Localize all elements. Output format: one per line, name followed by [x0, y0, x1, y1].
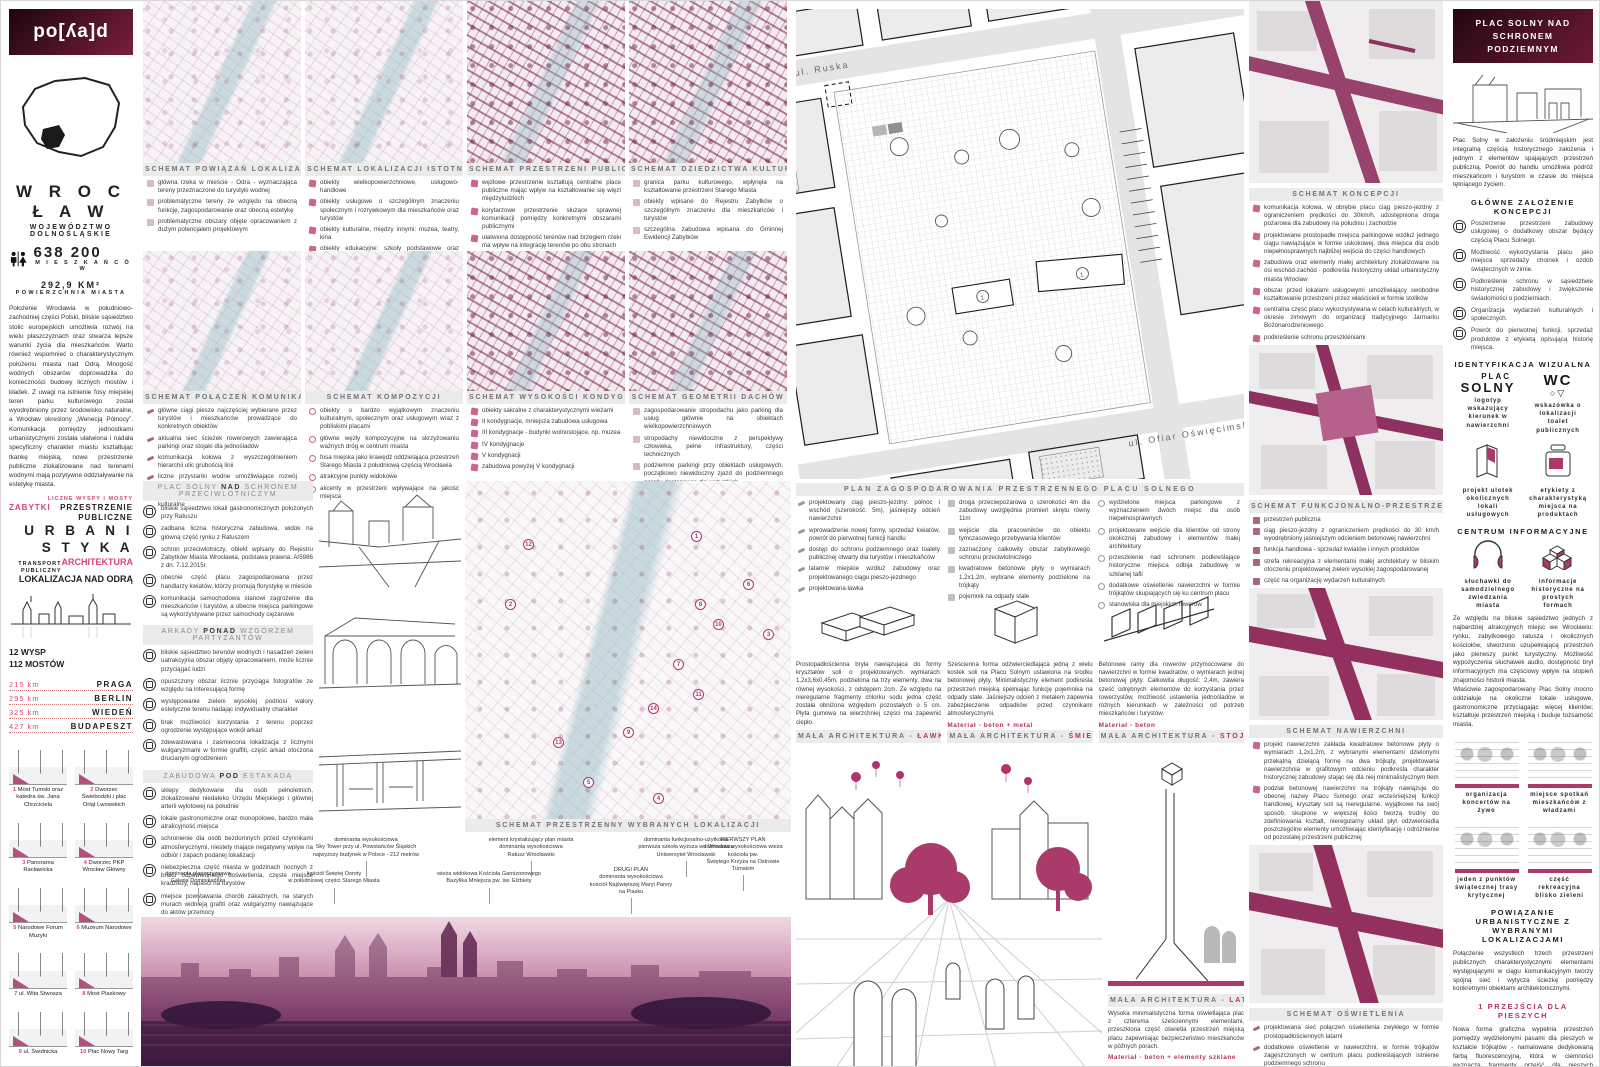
landmark-sketch	[9, 1003, 67, 1047]
street-sketch	[319, 481, 461, 589]
legend-icon	[309, 435, 317, 443]
site-item-text: bliskie sąsiedztwo terenów wodnych i nas…	[161, 649, 313, 674]
legend-text: obszar przed lokalami usługowymi umożliw…	[1264, 287, 1439, 303]
bullet-icon	[143, 698, 156, 711]
legend-text: problematyczne obszary objęte opracowani…	[158, 218, 297, 234]
site-item-text: sklepy dedykowane dla osób pełnoletnich,…	[161, 787, 313, 812]
legend-icon	[1253, 578, 1260, 585]
site-section-items: bliskie sąsiedztwo lokali gastronomiczny…	[143, 505, 313, 619]
info-cubes-icon	[1540, 540, 1576, 570]
photo-caption: jeden z punktów świątecznej trasy krytyc…	[1455, 876, 1519, 900]
furniture-desc: Prostopadłościenna bryła nawiązująca do …	[796, 661, 941, 727]
map-marker: 3	[763, 629, 774, 640]
photo-caption: miejsce spotkań mieszkańców z władzami	[1528, 791, 1592, 815]
legend-icon	[1253, 287, 1261, 295]
legend-icon	[633, 408, 640, 415]
meeting-illustration	[1528, 736, 1592, 788]
landmark-item: 6 Muzeum Narodowe	[75, 879, 133, 939]
landmark-name: Dworzec PKP Wrocław Główny	[82, 860, 125, 873]
bullet-icon	[143, 739, 156, 752]
legend-text: centralna część placu wykorzystywana w c…	[1264, 306, 1439, 331]
legend-icon	[633, 199, 640, 206]
distance-row: 427 km BUDAPESZT	[9, 719, 133, 733]
idwiz-caption: logotyp wskazujący kierunek w nawierzchn…	[1459, 397, 1517, 429]
distance-row: 295 km BERLIN	[9, 691, 133, 705]
landmark-item: 1 Most Tumski oraz katedra św. Jana Chrz…	[9, 741, 67, 809]
legend-icon	[1253, 559, 1260, 566]
landmark-name: Narodowe Forum Muzyki	[18, 925, 63, 938]
landmark-number: 5	[13, 925, 16, 931]
legend-text: III kondygnacje - budynki wolnostojące, …	[482, 429, 620, 437]
legend-text: droga przeciwpożarowa o szerokości 4m dl…	[959, 499, 1090, 524]
legend-text: część na organizację wydarzeń kulturalny…	[1264, 577, 1385, 585]
concept-icon	[1453, 327, 1466, 340]
lighting-title: SCHEMAT OŚWIETLENIA	[1249, 1008, 1443, 1021]
centrum-caption: słuchawki do samodzielnego zwiedzania mi…	[1459, 578, 1517, 610]
concept-text: Powrót do pierwotnej funkcji, sprzedaż p…	[1471, 327, 1593, 352]
landmark-name: Dworzec Świebodzki i plac Orląt Lwowskic…	[82, 787, 126, 807]
legend-text: zabudowa oraz elementy małej architektur…	[1264, 259, 1439, 284]
area-label: POWIERZCHNIA MIASTA	[9, 290, 133, 296]
legend-icon	[1253, 517, 1260, 524]
legend-icon	[1253, 205, 1261, 213]
lantern-panel: MAŁA ARCHITEKTURA - LATARNIA Wysoka mini…	[1108, 749, 1244, 1067]
master-plan: 1 1 ul. Ruska ul. Ofiar Oświęcimskich	[796, 9, 1244, 479]
legend-text: aktualna sieć ścieżek rowerowych zawiera…	[158, 435, 297, 451]
landmark-name: Panorama Racławicka	[23, 860, 53, 873]
legend-text: IV kondygnacje	[482, 441, 524, 449]
plan-caption: PLAN ZAGOSPODAROWANIA PRZESTRZENNEGO PLA…	[796, 483, 1244, 496]
site-section-title: ARKADY PONAD WZGÓRZEM PARTYZANTÓW	[143, 625, 313, 645]
trash-bin-sketch	[965, 589, 1065, 653]
landmark-caption: 1 Most Tumski oraz katedra św. Jana Chrz…	[9, 787, 67, 809]
panorama-annotations: dominanta wysokościowa Sky Tower przy ul…	[141, 837, 791, 907]
bikes-illustration	[1455, 821, 1519, 873]
furniture-caption: MAŁA ARCHITEKTURA - STOJAK	[1099, 730, 1244, 743]
spatial-map: 1234567891011121314	[465, 481, 791, 819]
landmark-sketch	[9, 814, 67, 858]
bullet-icon	[143, 525, 156, 538]
headphones-icon	[1470, 540, 1506, 570]
legend-icon	[471, 419, 479, 427]
landmark-caption: 10 Plac Nowy Targ	[75, 1049, 133, 1056]
map-marker: 11	[693, 689, 704, 700]
schematic-cell: SCHEMAT KOMPOZYCJI obiekty o bardzo wyją…	[305, 251, 463, 504]
legend-text: główne ciągi piesze najczęściej wybieran…	[158, 407, 297, 432]
panorama-label: DRUGI PLAN dominanta wysokościowa kośció…	[571, 867, 691, 914]
landmark-grid: 1 Most Tumski oraz katedra św. Jana Chrz…	[9, 741, 133, 1067]
landmark-number: 4	[84, 860, 87, 866]
cloud-word: TRANSPORT PUBLICZNY	[9, 561, 62, 575]
legend-icon	[471, 180, 479, 188]
map-marker: 8	[695, 599, 706, 610]
map-marker: 9	[623, 727, 634, 738]
legend-text: zagospodarowanie stropodachu jako parkin…	[644, 407, 783, 432]
legend-icon	[1253, 334, 1261, 342]
schematic-map	[629, 251, 787, 391]
bullet-icon	[143, 719, 156, 732]
bullet-icon	[143, 574, 156, 587]
furniture-caption: MAŁA ARCHITEKTURA - LATARNIA	[1108, 994, 1244, 1007]
map-marker: 1	[691, 531, 702, 542]
concept-title: SCHEMAT KONCEPCJI	[1249, 188, 1443, 201]
schematic-title: SCHEMAT DZIEDZICTWA KULTUROWEGO	[629, 163, 787, 176]
landmark-name: Muzeum Narodowe	[81, 925, 131, 931]
landmark-number: 1	[13, 787, 16, 793]
concept-text: Podkreślenie schronu w sąsiedztwie histo…	[1471, 278, 1593, 303]
map-marker: 10	[713, 619, 724, 630]
site-item-text: brak możliwości korzystania z terenu pop…	[161, 719, 313, 735]
legend-text: V kondygnacji	[482, 452, 521, 460]
concept-text: Organizacja wydarzeń kulturalnych i społ…	[1471, 307, 1593, 324]
material-label: Materiał - beton + elementy szklane	[1108, 1054, 1244, 1061]
legend-text: projektowany ciąg pieszo-jezdny: północ …	[809, 499, 940, 524]
landmark-name: ul. Świdnicka	[24, 1049, 58, 1055]
functional-title: SCHEMAT FUNKCJONALNO-PRZESTRZENNY	[1249, 500, 1443, 513]
landmark-sketch	[9, 741, 67, 785]
legend-text: projektowane prostopadłe miejsca parking…	[1264, 232, 1439, 257]
landmark-item: 8 Most Piaskowy	[75, 945, 133, 998]
legend-icon	[798, 548, 806, 554]
legend-text: ciąg pieszo-jezdny z ograniczeniem prędk…	[1264, 527, 1439, 543]
panorama-label: PIERWSZY PLAN dominanta wysokościowa wie…	[697, 837, 789, 891]
concept-legend: komunikacja kołowa, w obrębie placu ciąg…	[1249, 201, 1443, 342]
legend-icon	[471, 207, 479, 215]
landmark-sketch	[9, 945, 67, 989]
furniture-captions: MAŁA ARCHITEKTURA - ŁAWKA MAŁA ARCHITEKT…	[796, 730, 1244, 743]
landmark-caption: 8 Most Piaskowy	[75, 991, 133, 998]
legend-text: kwadratowe betonowe płyty o wymiarach 1,…	[959, 565, 1090, 590]
concept-icon	[1453, 307, 1466, 320]
legend-text: zabudowa powyżej V kondygnacji	[482, 463, 575, 471]
urban-links-header: POWIĄZANIE URBANISTYCZNE Z WYBRANYMI LOK…	[1453, 908, 1593, 944]
legend-text: węzłowe przestrzenie kształtują centraln…	[482, 179, 621, 204]
legend-icon	[798, 528, 806, 534]
map-marker: 4	[653, 793, 664, 804]
area-number: 292,9 KM²	[9, 280, 133, 290]
furniture-caption: MAŁA ARCHITEKTURA - ŁAWKA	[796, 730, 941, 743]
arcade-sketch	[319, 600, 461, 708]
landmark-name: ul. Wita Stwosza	[19, 991, 62, 997]
legend-icon	[471, 430, 479, 438]
skyline-sketch	[9, 590, 133, 638]
legend-icon	[1253, 786, 1261, 794]
legend-icon	[1253, 232, 1261, 240]
concept-column: SCHEMAT KONCEPCJI komunikacja kołowa, w …	[1249, 1, 1443, 1067]
site-item-text: lokale gastronomiczne oraz monopolowe, b…	[161, 815, 313, 831]
map-marker: 12	[523, 539, 534, 550]
legend-text: wydzielone miejsca parkingowe z wyznacze…	[1109, 499, 1240, 524]
legend-text: przeszklenie nad schronem podkreślające …	[1109, 554, 1240, 579]
distance-city: BERLIN	[94, 694, 133, 703]
legend-icon	[1253, 1026, 1261, 1032]
distance-list: 215 km PRAGA 295 km BERLIN 325 km WIEDEŃ…	[9, 677, 133, 733]
legend-text: podkreślenie schronu przeszkleniami	[1264, 334, 1365, 342]
legend-icon	[309, 180, 317, 188]
distance-city: PRAGA	[97, 680, 133, 689]
wc-sign: WC ○▽ wskazówka o lokalizacji toalet pub…	[1529, 373, 1587, 434]
landmark-sketch	[75, 741, 133, 785]
landmark-item: 2 Dworzec Świebodzki i plac Orląt Lwowsk…	[75, 741, 133, 809]
spatial-markers: 1234567891011121314	[465, 481, 791, 819]
schematic-legend: obiekty sakralne z charakterystycznymi w…	[467, 404, 625, 471]
legend-icon	[147, 199, 154, 206]
legend-text: funkcja handlowa - sprzedaż kwiatów i in…	[1264, 546, 1419, 554]
landmark-item: 11 al. Słowackiego	[9, 1061, 67, 1067]
plaza-visualization	[796, 749, 1102, 1067]
furniture-desc: Betonowe ramy dla rowerów przymocowane d…	[1099, 661, 1244, 719]
bullet-icon	[143, 546, 156, 559]
legend-text: podział betonowej nawierzchni na trójkąt…	[1264, 785, 1439, 842]
legend-text: wprowadzenie nowej formy, sprzedaż kwiat…	[809, 527, 940, 543]
landmark-caption: 9 ul. Świdnicka	[9, 1049, 67, 1056]
studio-logo: po[ʎa]d	[9, 9, 133, 55]
section-1-header: 1 PRZEJŚCIA DLA PIESZYCH	[1453, 1002, 1593, 1020]
urban-links-paragraph: Połączenie wszystkich trzech przestrzeni…	[1453, 950, 1593, 994]
legend-icon	[471, 441, 479, 449]
schematic-title: SCHEMAT POŁĄCZEŃ KOMUNIKACYJNYCH	[143, 391, 301, 404]
schematic-title: SCHEMAT LOKALIZACJI ISTOTNYCH USŁUG	[305, 163, 463, 176]
lighting-map	[1249, 845, 1443, 1003]
lantern-sketch	[1108, 749, 1244, 989]
jar-icon	[1543, 443, 1573, 479]
legend-text: obiekty kulturalne, między innymi: muzea…	[320, 226, 459, 242]
legend-icon	[1253, 307, 1261, 315]
landmark-caption: 4 Dworzec PKP Wrocław Główny	[75, 860, 133, 874]
bullet-icon	[143, 787, 156, 800]
site-item-text: schron przeciwlotniczy, obiekt wpisany d…	[161, 546, 313, 571]
schematic-legend: główna rzeka w mieście - Odra - wyznacza…	[143, 176, 301, 234]
paving-map	[1249, 588, 1443, 720]
legend-text: wejście dla pracowników do obiektu tymcz…	[959, 527, 1090, 543]
legend-icon	[948, 547, 955, 554]
schematic-cell: SCHEMAT GEOMETRII DACHÓW zagospodarowani…	[629, 251, 787, 509]
legend-icon	[798, 567, 806, 573]
landmark-name: Most Tumski oraz katedra św. Jana Chrzci…	[16, 787, 63, 807]
schematic-title: SCHEMAT PRZESTRZENI PUBLICZNYCH	[467, 163, 625, 176]
legend-text: obiekty wielkopowierzchniowe, usługowo-h…	[320, 179, 459, 195]
landmark-number: 10	[80, 1049, 86, 1055]
viaduct-sketch	[319, 719, 461, 827]
landmark-sketch	[75, 945, 133, 989]
legend-icon	[633, 180, 640, 187]
legend-icon	[1253, 1045, 1261, 1051]
schematic-legend: granica parku kulturowego, wpłynęła na k…	[629, 176, 787, 242]
landmark-sketch	[9, 1061, 67, 1067]
legend-text: stropodachy niewidoczne z perspektywy cz…	[644, 435, 783, 460]
legend-text: komunikacja kołowa, w obrębie placu ciąg…	[1264, 204, 1439, 229]
schematic-cell: SCHEMAT POŁĄCZEŃ KOMUNIKACYJNYCH główne …	[143, 251, 301, 512]
info-center-header: CENTRUM INFORMACYJNE	[1453, 527, 1593, 536]
paving-title: SCHEMAT NAWIERZCHNI	[1249, 725, 1443, 738]
region-name: WOJEWÓDZTWO DOLNOŚLĄSKIE	[9, 224, 133, 238]
city-name: W R O C Ł A W	[9, 182, 133, 222]
site-item-text: zdewastowana i zaśmiecona lokalizacja z …	[161, 739, 313, 764]
legend-icon	[1098, 527, 1106, 535]
legend-text: projektowana sieć połączeń oświetlenia z…	[1264, 1024, 1439, 1040]
legend-icon	[948, 528, 955, 535]
schematic-map	[143, 251, 301, 391]
legend-text: komunikacja kołowa z wyszczególnieniem h…	[158, 454, 297, 470]
legend-icon	[1253, 742, 1261, 750]
legend-icon	[147, 475, 155, 481]
intro-paragraph: Położenie Wrocławia w południowo-zachodn…	[9, 304, 133, 490]
legend-icon	[309, 226, 317, 234]
legend-icon	[633, 436, 640, 443]
legend-icon	[1253, 260, 1261, 268]
legend-icon	[1098, 500, 1106, 508]
furniture-descriptions: Prostopadłościenna bryła nawiązująca do …	[796, 661, 1244, 737]
landmark-caption: 3 Panorama Racławicka	[9, 860, 67, 874]
visual-identity-header: IDENTYFIKACJA WIZUALNA	[1453, 360, 1593, 369]
furniture-caption: MAŁA ARCHITEKTURA - ŚMIETNIK	[947, 730, 1092, 743]
landmark-number: 9	[19, 1049, 22, 1055]
cloud-word: PRZESTRZENIE PUBLICZNE	[51, 503, 133, 523]
info-center-paragraph: Ze względu na bliskie sąsiedztwo jednych…	[1453, 615, 1593, 730]
landmark-name: Most Piaskowy	[87, 991, 126, 997]
landmark-item: 4 Dworzec PKP Wrocław Główny	[75, 814, 133, 874]
idwiz-caption: projekt ulotek okolicznych lokali usługo…	[1459, 487, 1517, 519]
distance-km: 215 km	[9, 680, 40, 689]
legend-icon	[147, 409, 155, 415]
legend-icon	[1253, 528, 1260, 535]
legend-icon	[471, 463, 479, 471]
map-marker: 2	[505, 599, 516, 610]
legend-text: główna rzeka w mieście - Odra - wyznacza…	[158, 179, 297, 195]
greenery-illustration	[1528, 821, 1592, 873]
legend-icon	[471, 452, 479, 460]
schematic-cell: SCHEMAT PRZESTRZENI PUBLICZNYCH węzłowe …	[467, 1, 625, 254]
schematic-title: SCHEMAT WYSOKOŚCI KONDYGNACJI	[467, 391, 625, 404]
functional-legend: przestrzeń publicznaciąg pieszo-jezdny z…	[1249, 513, 1443, 585]
landmark-item: 9 ul. Świdnicka	[9, 1003, 67, 1056]
cloud-word: ARCHITEKTURA	[62, 557, 134, 568]
landmark-number: 2	[90, 787, 93, 793]
paving-legend: projekt nawierzchni zakłada kwadratowe b…	[1249, 738, 1443, 842]
legend-icon	[633, 463, 640, 470]
legend-text: latarnie miejskie wzdłuż zabudowy oraz p…	[809, 565, 940, 581]
concept-map	[1249, 1, 1443, 183]
site-section-title: PLAC SOLNY NAD SCHRONEM PRZECIWLOTNICZYM	[143, 481, 313, 501]
landmark-sketch	[9, 879, 67, 923]
section-1-text: Nowa forma graficzna wypełnia przestrzeń…	[1453, 1026, 1593, 1067]
legend-icon	[948, 566, 955, 573]
legend-text: projektowane wejście dla klientów od str…	[1109, 527, 1240, 552]
panorama-label: wieża widokowa Kościoła Garnizonowego Ba…	[419, 871, 559, 904]
legend-icon	[147, 456, 155, 462]
concert-illustration	[1455, 736, 1519, 788]
legend-icon	[147, 180, 154, 187]
concept-icon	[1453, 249, 1466, 262]
poland-map	[9, 63, 133, 173]
landmark-item: 12 ul. Św. Mikołaja	[75, 1061, 133, 1067]
idwiz-caption: wskazówka o lokalizacji toalet publiczny…	[1529, 402, 1587, 434]
legend-icon	[471, 408, 479, 416]
intro-paragraph: Plac Solny w założeniu śródmiejskim jest…	[1453, 137, 1593, 190]
map-marker: 5	[583, 777, 594, 788]
legend-icon	[309, 199, 317, 207]
logo-text: po[ʎa]d	[33, 21, 109, 42]
bullet-icon	[143, 649, 156, 662]
legend-icon	[471, 235, 479, 243]
population-number: 638 200	[34, 245, 133, 260]
keyword-cloud: LICZNE WYSPY I MOSTY ZABYTKI PRZESTRZENI…	[9, 496, 133, 586]
legend-icon	[309, 408, 317, 416]
legend-icon	[798, 501, 806, 507]
map-marker: 14	[648, 703, 659, 714]
schematic-cell: SCHEMAT DZIEDZICTWA KULTUROWEGO granica …	[629, 1, 787, 245]
centrum-caption: informacje historyczne na prostych forma…	[1529, 578, 1587, 610]
legend-icon	[633, 227, 640, 234]
concept-points: Poszerzenie przestrzeni zabudowy usługow…	[1453, 220, 1593, 352]
bullet-icon	[143, 678, 156, 691]
legend-text: dostęp do schronu podziemnego oraz toale…	[809, 546, 940, 562]
landmark-sketch	[75, 814, 133, 858]
distance-city: BUDAPESZT	[71, 722, 133, 731]
site-sketches	[319, 481, 461, 832]
site-item-text: zadbana liczna historyczna zabudowa, wid…	[161, 525, 313, 541]
landmark-item: 5 Narodowe Forum Muzyki	[9, 879, 67, 939]
distance-row: 215 km PRAGA	[9, 677, 133, 691]
landmark-item: 7 ul. Wita Stwosza	[9, 945, 67, 998]
legend-text: szczególna zabudowa wpisana do Gminnej E…	[644, 226, 783, 242]
schematic-legend: obiekty wielkopowierzchniowe, usługowo-h…	[305, 176, 463, 262]
furniture-sketches	[796, 589, 1244, 653]
cloud-word: LICZNE WYSPY I MOSTY	[9, 496, 133, 503]
schematic-map	[305, 1, 463, 163]
legend-text: problematyczne tereny ze względu na obec…	[158, 198, 297, 214]
landmark-sketch	[75, 879, 133, 923]
distance-km: 325 km	[9, 708, 40, 717]
spatial-caption: SCHEMAT PRZESTRZENNY WYBRANYCH LOKALIZAC…	[465, 819, 791, 832]
legend-icon	[948, 500, 955, 507]
bullet-icon	[143, 505, 156, 518]
legend-icon	[147, 436, 155, 442]
site-section-title: ZABUDOWA POD ESTAKADĄ	[143, 770, 313, 783]
legend-text: II kondygnacje, mniejsza zabudowa usługo…	[482, 418, 608, 426]
concept-text: Możliwość wykorzystania placu jako miejs…	[1471, 249, 1593, 274]
schematic-map	[467, 251, 625, 391]
legend-text: obiekty sakralne z charakterystycznymi w…	[482, 407, 613, 415]
legend-text: dodatkowe oświetlenie w nawierzchni, w f…	[1264, 1044, 1439, 1067]
site-section: PLAC SOLNY NAD SCHRONEM PRZECIWLOTNICZYM…	[143, 481, 313, 619]
legend-text: strefa rekreacyjna z elementami małej ar…	[1264, 558, 1439, 574]
bullet-icon	[143, 815, 156, 828]
legend-text: fosa miejska jako krawędź oddzielająca p…	[320, 454, 459, 470]
concept-icon	[1453, 278, 1466, 291]
legend-icon	[309, 454, 317, 462]
landmark-number: 6	[76, 925, 79, 931]
schematic-title: SCHEMAT POWIĄZAŃ LOKALIZACJI	[143, 163, 301, 176]
spatial-schematic: 1234567891011121314 SCHEMAT PRZESTRZENNY…	[465, 481, 791, 832]
schematic-cell: SCHEMAT WYSOKOŚCI KONDYGNACJI obiekty sa…	[467, 251, 625, 474]
landmark-item: 10 Plac Nowy Targ	[75, 1003, 133, 1056]
site-item-text: obecnie część placu zagospodarowana prze…	[161, 574, 313, 590]
project-title: PLAC SOLNY NAD SCHRONEM PODZIEMNYM	[1453, 9, 1593, 63]
left-sidebar: po[ʎa]d W R O C Ł A W WOJEWÓDZTWO DOLNOŚ…	[1, 1, 141, 1067]
site-section-items: bliskie sąsiedztwo terenów wodnych i nas…	[143, 649, 313, 763]
islands-stat: 12 WYSP	[9, 647, 46, 657]
bench-sketch	[812, 589, 932, 653]
legend-text: korytarzowe przestrzenie służące sprawne…	[482, 207, 621, 232]
bullet-icon	[143, 595, 156, 608]
panorama-label: kościół Świętej Doroty w południowej czę…	[269, 871, 399, 904]
landmark-number: 7	[14, 991, 17, 997]
photo-caption: część rekreacyjna blisko zieleni	[1528, 876, 1592, 900]
schematic-map	[143, 1, 301, 163]
furniture-desc: Sześcienna forma odzwierciedlająca jedną…	[947, 661, 1092, 719]
schematic-legend: węzłowe przestrzenie kształtują centraln…	[467, 176, 625, 251]
